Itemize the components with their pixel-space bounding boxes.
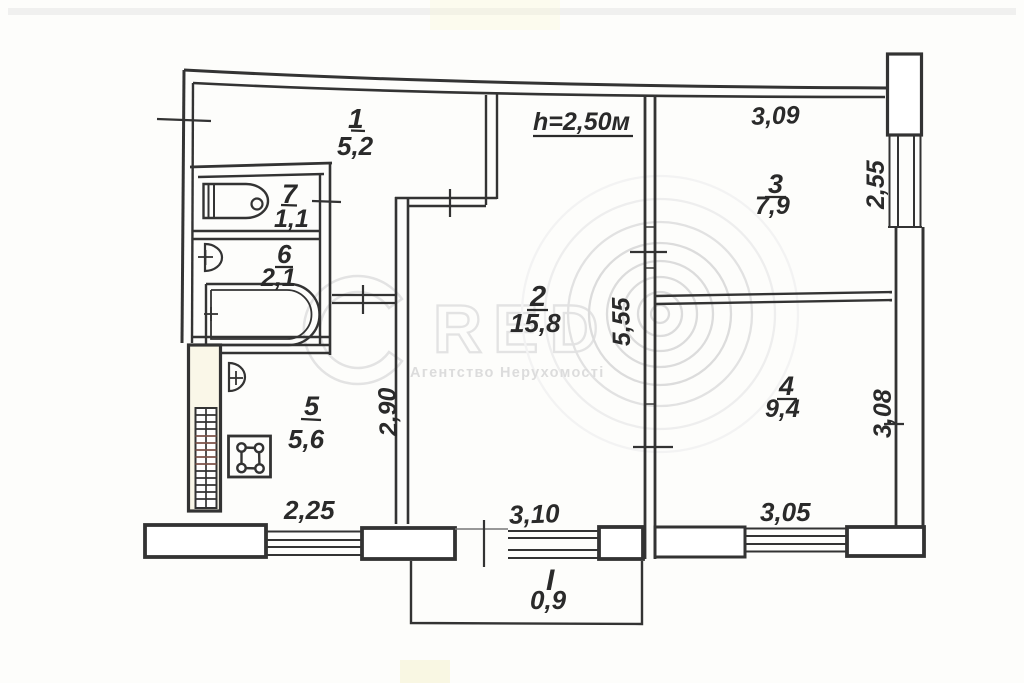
svg-text:5: 5 <box>304 391 320 421</box>
svg-text:3,10: 3,10 <box>508 498 560 530</box>
svg-text:3,08: 3,08 <box>869 389 897 438</box>
svg-text:0,9: 0,9 <box>530 585 567 615</box>
svg-text:5,55: 5,55 <box>607 296 636 346</box>
svg-text:3,05: 3,05 <box>760 497 811 527</box>
svg-text:5,2: 5,2 <box>337 131 374 161</box>
svg-text:2,1: 2,1 <box>260 264 296 292</box>
svg-text:2,55: 2,55 <box>862 159 890 210</box>
svg-text:1: 1 <box>348 103 364 134</box>
svg-text:5,6: 5,6 <box>288 424 325 454</box>
svg-text:3,09: 3,09 <box>751 101 801 131</box>
svg-text:2,90: 2,90 <box>373 387 403 438</box>
svg-text:9,4: 9,4 <box>765 395 800 423</box>
svg-text:Агентство Нерухомості: Агентство Нерухомості <box>410 365 605 381</box>
svg-text:1,1: 1,1 <box>274 205 309 233</box>
svg-text:2,25: 2,25 <box>283 495 335 525</box>
svg-text:7,9: 7,9 <box>755 192 790 220</box>
svg-text:15,8: 15,8 <box>510 308 561 338</box>
svg-text:h=2,50м: h=2,50м <box>533 108 630 136</box>
